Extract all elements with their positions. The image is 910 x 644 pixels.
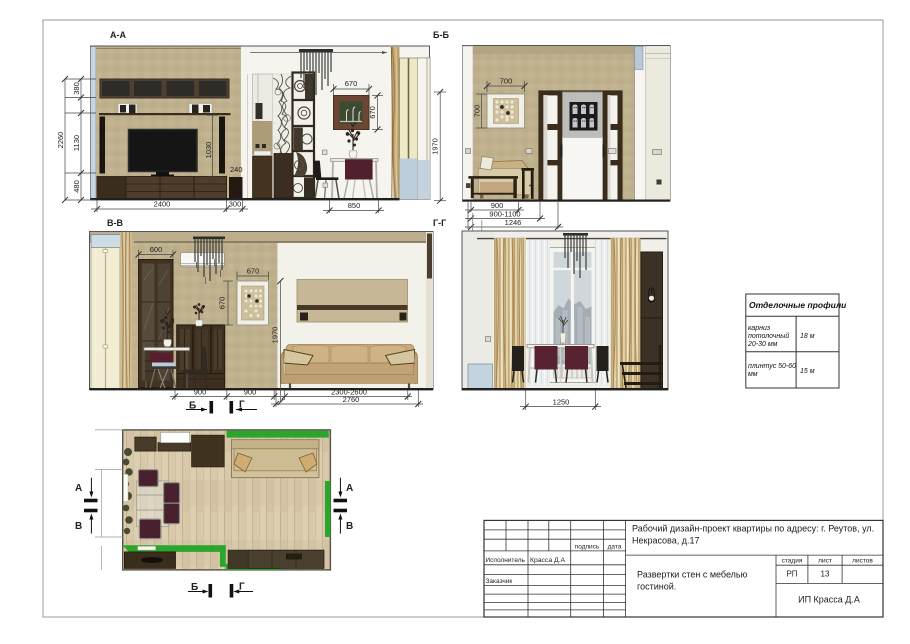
svg-text:РП: РП (786, 570, 797, 579)
svg-text:стадия: стадия (782, 558, 803, 565)
svg-text:1250: 1250 (553, 398, 570, 407)
svg-text:Исполнитель: Исполнитель (486, 557, 526, 564)
svg-text:1970: 1970 (271, 327, 280, 344)
svg-text:1130: 1130 (72, 135, 81, 151)
svg-text:Красса Д.А: Красса Д.А (530, 557, 565, 564)
svg-text:1970: 1970 (431, 138, 440, 155)
svg-text:Отделочные профили: Отделочные профили (749, 300, 847, 310)
svg-text:2760: 2760 (343, 395, 360, 404)
svg-text:листов: листов (852, 558, 873, 565)
svg-text:18 м: 18 м (800, 333, 815, 340)
svg-text:В-В: В-В (107, 218, 123, 228)
svg-text:380: 380 (72, 82, 81, 95)
svg-text:дата: дата (608, 543, 622, 550)
svg-text:900: 900 (244, 388, 257, 397)
svg-text:2260: 2260 (56, 132, 65, 149)
svg-text:13: 13 (821, 570, 830, 579)
svg-text:670: 670 (345, 79, 358, 88)
svg-text:1030: 1030 (204, 142, 213, 159)
svg-text:подпись: подпись (575, 543, 600, 550)
svg-text:900: 900 (194, 388, 207, 397)
svg-text:ИП Красса Д.А: ИП Красса Д.А (798, 595, 860, 605)
svg-text:В: В (75, 521, 82, 532)
svg-text:Заказчик: Заказчик (486, 578, 513, 585)
svg-text:мм: мм (748, 371, 758, 378)
svg-text:Г-Г: Г-Г (433, 218, 446, 228)
svg-text:Б-Б: Б-Б (433, 30, 449, 40)
svg-text:2400: 2400 (154, 200, 171, 209)
svg-text:850: 850 (348, 201, 361, 210)
svg-text:670: 670 (247, 267, 260, 276)
svg-text:15 м: 15 м (800, 368, 815, 375)
svg-text:А: А (75, 483, 82, 494)
svg-text:гостиной.: гостиной. (637, 582, 676, 592)
svg-text:Рабочий дизайн-проект квартиры: Рабочий дизайн-проект квартиры по адресу… (632, 524, 874, 534)
svg-text:240: 240 (230, 165, 243, 174)
svg-text:670: 670 (218, 297, 227, 310)
svg-text:лист: лист (818, 558, 832, 565)
svg-text:Г: Г (239, 400, 245, 411)
svg-text:А: А (346, 483, 353, 494)
svg-text:300: 300 (229, 200, 242, 209)
svg-text:плинтус 50-60: плинтус 50-60 (748, 363, 796, 370)
svg-text:В: В (346, 521, 353, 532)
svg-text:700: 700 (500, 77, 513, 86)
svg-text:Г: Г (239, 582, 245, 593)
svg-text:А-А: А-А (110, 30, 126, 40)
svg-text:потолочный: потолочный (748, 332, 789, 340)
svg-text:1246: 1246 (505, 218, 522, 227)
svg-text:карниз: карниз (748, 325, 771, 332)
svg-text:480: 480 (72, 180, 81, 193)
svg-text:600: 600 (150, 245, 163, 254)
svg-text:700: 700 (473, 105, 482, 118)
svg-text:Развертки стен с мебелью: Развертки стен с мебелью (637, 570, 748, 580)
svg-text:20-30 мм: 20-30 мм (747, 341, 778, 348)
svg-text:Некрасова, д.17: Некрасова, д.17 (632, 536, 700, 546)
svg-text:670: 670 (368, 106, 377, 119)
